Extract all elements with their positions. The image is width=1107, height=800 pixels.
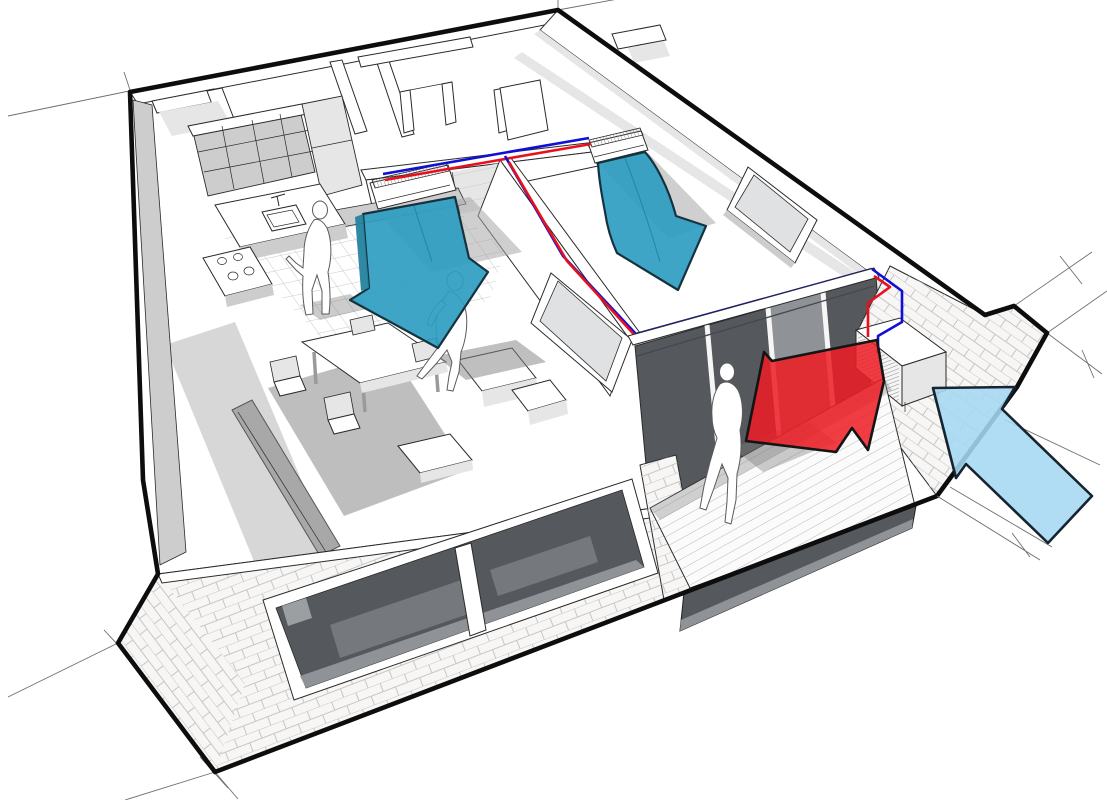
apartment-cutaway-diagram: Perspective cutaway diagram of a one-bed… (0, 0, 1107, 800)
outside-air-intake-arrow (933, 387, 1092, 543)
open-door (500, 80, 548, 140)
heat-exhaust-arrow (746, 340, 884, 452)
diagram-canvas: Perspective cutaway diagram of a one-bed… (0, 0, 1107, 800)
